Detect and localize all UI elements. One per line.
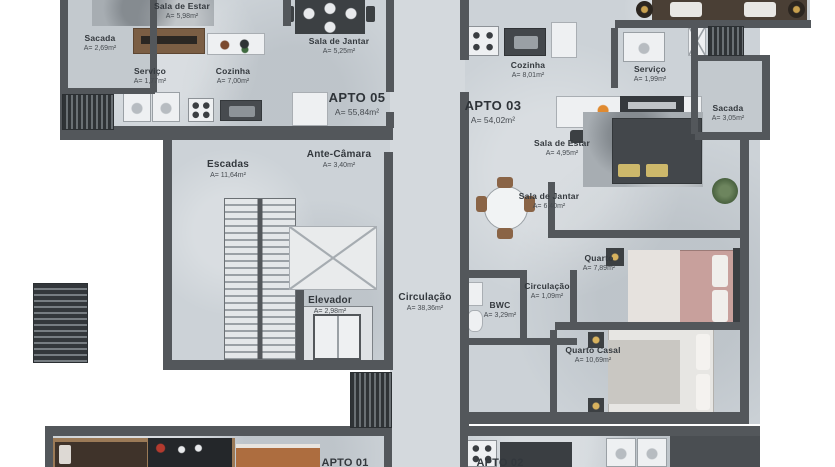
vent-grate	[350, 372, 392, 428]
fridge	[292, 92, 328, 126]
room-area: A= 4,95m²	[534, 149, 590, 158]
room-area: A= 3,05m²	[712, 114, 745, 123]
room-label-cozinha-left: Cozinha A= 7,00m²	[216, 66, 250, 86]
room-label-bwc: BWC A= 3,29m²	[484, 300, 517, 320]
wall	[555, 322, 748, 330]
wall	[296, 290, 304, 368]
room-area: A= 3,29m²	[484, 311, 517, 320]
bed-blanket	[628, 250, 680, 326]
washer	[123, 92, 151, 122]
room-area: A= 2,69m²	[84, 44, 117, 53]
apartment-name: APTO 05	[329, 90, 386, 107]
wall	[384, 428, 392, 467]
room-area: A= 11,64m²	[207, 171, 249, 180]
apartment-name: APTO 03	[465, 98, 522, 115]
room-name: Sala de Jantar	[309, 36, 369, 47]
wall	[386, 112, 394, 128]
shaft-x-box	[289, 226, 377, 290]
room-name: Sala de Estar	[154, 1, 210, 12]
pillow	[744, 2, 776, 17]
room-name: Sala de Jantar	[519, 191, 579, 202]
fridge	[551, 22, 577, 58]
stair-rail	[258, 199, 263, 359]
pillow	[670, 2, 702, 17]
wall	[163, 140, 172, 368]
apartment-area: A= 55,84m²	[329, 107, 386, 118]
room-area: A= 3,40m²	[307, 161, 371, 170]
washer	[637, 438, 667, 467]
wall	[691, 22, 698, 134]
room-label-ante-camara: Ante-Câmara A= 3,40m²	[307, 148, 371, 170]
vent-grate	[708, 26, 744, 56]
room-name: Escadas	[207, 158, 249, 171]
wall	[460, 92, 469, 428]
wall	[611, 28, 618, 88]
apartment-area: A= 54,02m²	[465, 115, 522, 126]
floor-plan: Sacada A= 2,69m² Sala de Estar A= 5,98m²…	[0, 0, 835, 467]
toilet	[467, 310, 483, 332]
room-name: Quarto Casal	[565, 345, 620, 356]
room-name: Circulação	[398, 291, 451, 304]
speaker	[636, 1, 653, 18]
wall	[465, 270, 523, 278]
wall	[60, 0, 68, 95]
dining-table	[295, 0, 365, 34]
pillow	[618, 164, 640, 177]
wardrobe-bottom-cut	[670, 436, 760, 467]
louver-vent	[33, 283, 88, 363]
room-label-elevador: Elevador A= 2,98m²	[308, 294, 352, 316]
wall	[283, 0, 291, 26]
wall	[460, 0, 469, 60]
room-label-sala-jantar-right: Sala de Jantar A= 6,40m²	[519, 191, 579, 211]
wall	[570, 270, 577, 328]
floor-sacada-right	[695, 55, 770, 140]
room-label-cozinha-right: Cozinha A= 8,01m²	[511, 60, 545, 80]
room-label-sacada-left: Sacada A= 2,69m²	[84, 33, 117, 53]
apartment-label-apto02: APTO 02	[476, 456, 523, 467]
pillow	[646, 164, 668, 177]
wall	[465, 338, 577, 345]
room-area: A= 5,98m²	[154, 12, 210, 21]
bathroom-sink	[467, 282, 483, 306]
pillow	[712, 255, 728, 287]
room-label-escadas: Escadas A= 11,64m²	[207, 158, 249, 180]
wall	[163, 360, 393, 370]
elevator-car	[313, 314, 361, 360]
washer	[623, 32, 665, 62]
dining-chair	[366, 6, 375, 22]
room-name: Quarto	[583, 253, 616, 264]
dining-chair	[476, 196, 487, 212]
room-area: A= 38,36m²	[398, 304, 451, 313]
room-label-sala-jantar-left: Sala de Jantar A= 5,25m²	[309, 36, 369, 56]
wall	[762, 55, 770, 140]
pillow	[59, 445, 71, 464]
wall	[386, 0, 394, 92]
pillow	[712, 290, 728, 322]
room-area: A= 2,98m²	[308, 307, 352, 316]
vent-grate	[62, 94, 114, 130]
room-area: A= 1,99m²	[634, 75, 667, 84]
plant	[712, 178, 738, 204]
room-area: A= 7,00m²	[216, 77, 250, 86]
dining-chair	[497, 228, 513, 239]
kitchen-sink	[220, 100, 262, 121]
kitchen-counter	[207, 33, 265, 55]
room-name: Circulação	[524, 281, 569, 292]
wall	[550, 330, 557, 412]
apartment-name: APTO 02	[476, 456, 523, 467]
wall	[45, 430, 53, 467]
dining-chair	[497, 177, 513, 188]
floor-corridor	[390, 0, 465, 467]
room-area: A= 1,09m²	[524, 292, 569, 301]
wall	[460, 428, 468, 467]
wall	[45, 426, 390, 436]
wall	[384, 152, 393, 370]
room-label-quarto: Quarto A= 7,89m²	[583, 253, 616, 273]
bed-bottom-cut	[236, 444, 320, 467]
kitchen-sink	[504, 28, 546, 56]
wall	[740, 140, 749, 412]
stove	[467, 26, 499, 56]
speaker	[788, 1, 805, 18]
room-name: Serviço	[634, 64, 667, 75]
staircase	[224, 198, 296, 360]
room-name: BWC	[484, 300, 517, 311]
pillow	[696, 334, 710, 370]
room-area: A= 6,40m²	[519, 202, 579, 211]
room-name: Cozinha	[511, 60, 545, 71]
room-name: Serviço	[134, 66, 167, 77]
room-label-servico-left: Serviço A= 1,77m²	[134, 66, 167, 86]
room-area: A= 5,25m²	[309, 47, 369, 56]
room-name: Cozinha	[216, 66, 250, 77]
room-area: A= 10,69m²	[565, 356, 620, 365]
room-name: Sala de Estar	[534, 138, 590, 149]
washer	[606, 438, 636, 467]
wall	[465, 426, 760, 436]
room-name: Ante-Câmara	[307, 148, 371, 161]
apartment-label-apto05: APTO 05 A= 55,84m²	[329, 90, 386, 118]
apartment-label-apto03: APTO 03 A= 54,02m²	[465, 98, 522, 126]
room-label-circulacao-int: Circulação A= 1,09m²	[524, 281, 569, 301]
room-label-sala-estar-left: Sala de Estar A= 5,98m²	[154, 1, 210, 21]
room-area: A= 7,89m²	[583, 264, 616, 273]
wall	[465, 412, 749, 424]
room-label-sacada-right: Sacada A= 3,05m²	[712, 103, 745, 123]
room-label-servico-right: Serviço A= 1,99m²	[634, 64, 667, 84]
room-name: Sacada	[712, 103, 745, 114]
room-area: A= 1,77m²	[134, 77, 167, 86]
wall	[555, 230, 748, 238]
room-name: Elevador	[308, 294, 352, 307]
apartment-label-apto01: APTO 01	[321, 456, 368, 467]
room-label-circulacao: Circulação A= 38,36m²	[398, 291, 451, 313]
stove	[188, 98, 214, 122]
apartment-name: APTO 01	[321, 456, 368, 467]
wall	[695, 132, 770, 140]
room-label-quarto-casal: Quarto Casal A= 10,69m²	[565, 345, 620, 365]
washer	[152, 92, 180, 122]
room-label-sala-estar-right: Sala de Estar A= 4,95m²	[534, 138, 590, 158]
kitchen-counter-dark	[148, 438, 232, 467]
room-name: Sacada	[84, 33, 117, 44]
pillow	[696, 374, 710, 410]
room-area: A= 8,01m²	[511, 71, 545, 80]
